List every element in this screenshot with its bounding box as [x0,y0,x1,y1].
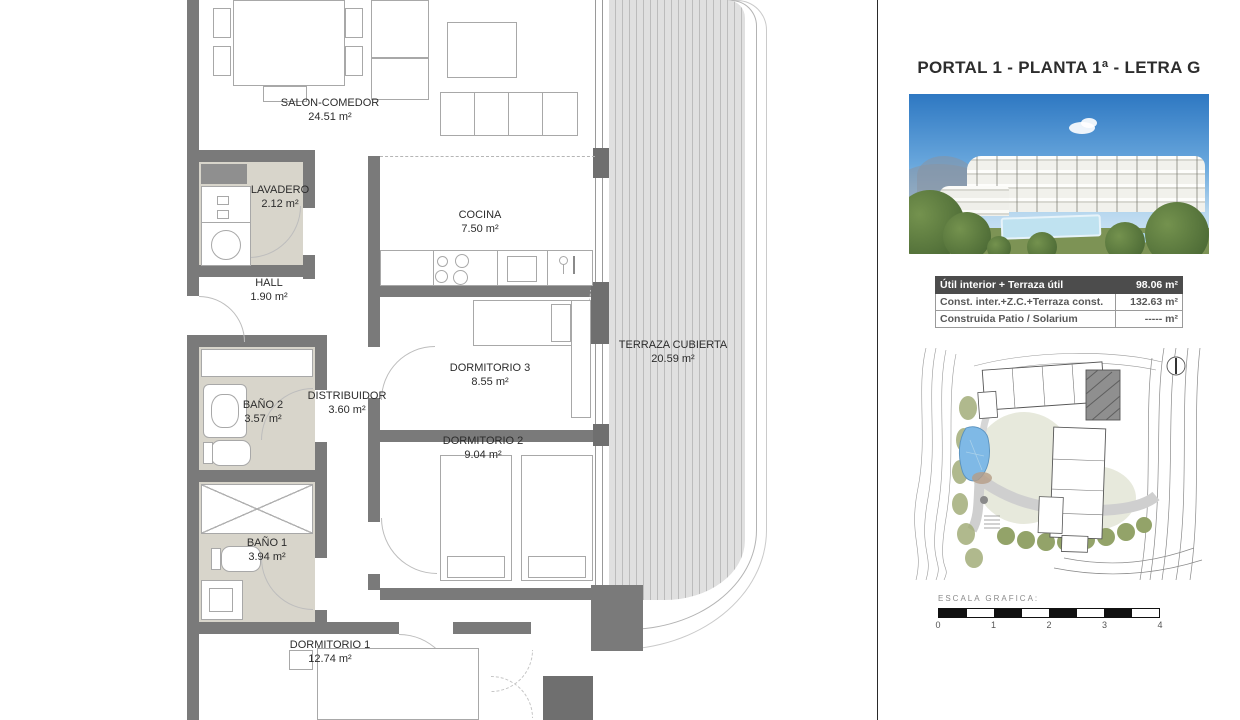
room-label-cocina: COCINA 7.50 m² [459,208,502,237]
scale-tick: 4 [1157,620,1162,630]
washer-drum-icon [211,230,241,260]
scale-segment [939,609,967,617]
furniture-chair [345,46,363,76]
wall-segment [315,442,327,470]
site-plan-image [914,348,1204,580]
scale-ticks: 0 1 2 3 4 [938,620,1160,632]
wardrobe-door-arc [491,676,533,718]
room-label-dormitorio3: DORMITORIO 3 8.55 m² [450,361,530,390]
wall-pillar [593,424,609,446]
wall-segment [315,610,327,622]
room-label-hall: HALL 1.90 m² [250,276,287,305]
room-label-salon: SALON-COMEDOR 24.51 m² [281,96,379,125]
wall-segment [187,470,327,482]
furniture-toilet [211,440,251,466]
room-name: HALL [250,276,287,290]
furniture-bathtub [201,349,313,377]
scale-segment [1022,609,1050,617]
hob-burner-icon [453,270,468,285]
door-swing-arc [381,346,435,400]
room-area: 20.59 m² [619,352,727,366]
door-swing-arc [381,518,437,574]
room-area: 12.74 m² [290,652,370,666]
room-label-lavadero: LAVADERO 2.12 m² [251,183,309,212]
wall-pillar [543,676,593,720]
room-name: DISTRIBUIDOR [308,389,387,403]
wall-segment [368,574,380,590]
area-value: 98.06 m² [1116,277,1183,294]
fork-icon [573,256,575,274]
graphic-scale: ESCALA GRAFICA: 0 1 2 3 4 [938,594,1160,632]
counter-divider [497,250,498,286]
sofa-seat-line [474,92,475,136]
door-swing-arc [199,296,245,342]
room-label-terraza: TERRAZA CUBIERTA 20.59 m² [619,338,727,367]
furniture-wardrobe [571,300,591,418]
unit-title: PORTAL 1 - PLANTA 1ª - LETRA G [878,58,1240,78]
furniture-chair [213,8,231,38]
room-name: BAÑO 1 [247,536,287,550]
area-value: 132.63 m² [1116,294,1183,311]
wall-segment [187,344,199,720]
room-name: COCINA [459,208,502,222]
table-row: Const. inter.+Z.C.+Terraza const. 132.63… [936,294,1183,311]
furniture-chair [213,46,231,76]
area-label: Construida Patio / Solarium [936,311,1116,328]
washer-divider-line [201,222,251,223]
tree-shape [1105,222,1145,254]
scale-tick: 0 [935,620,940,630]
wine-glass-icon [563,264,564,274]
room-area: 1.90 m² [250,290,287,304]
room-label-bano1: BAÑO 1 3.94 m² [247,536,287,565]
room-label-distribuidor: DISTRIBUIDOR 3.60 m² [308,389,387,418]
tree-shape [987,236,1011,254]
hob-burner-icon [435,270,448,283]
cloud-shape [1081,118,1097,128]
room-name: TERRAZA CUBIERTA [619,338,727,352]
scale-segment [1132,609,1160,617]
scale-label: ESCALA GRAFICA: [938,594,1160,603]
site-plan-drawing [914,348,1204,580]
scale-segment [967,609,995,617]
room-area: 3.94 m² [247,550,287,564]
wall-segment [368,297,380,347]
wall-pillar [591,585,643,651]
sink-basin [211,394,239,428]
furniture-laundry-counter [201,164,247,184]
hob-burner-icon [437,256,448,267]
scale-segment [1049,609,1077,617]
table-row: Útil interior + Terraza útil 98.06 m² [936,277,1183,294]
scale-tick: 1 [991,620,996,630]
room-area: 2.12 m² [251,197,309,211]
toilet-tank [211,548,221,570]
wall-segment [187,0,199,296]
wall-segment [315,335,327,390]
wall-segment [187,150,315,162]
room-area: 3.60 m² [308,403,387,417]
wall-segment [453,622,531,634]
washer-detail [217,210,229,219]
room-area: 7.50 m² [459,222,502,236]
wall-segment [368,442,380,522]
tree-shape [943,212,991,254]
furniture-shower [201,484,313,534]
scale-tick: 2 [1046,620,1051,630]
sofa-seat-line [508,92,509,136]
scale-segment [1077,609,1105,617]
room-label-dormitorio2: DORMITORIO 2 9.04 m² [443,434,523,463]
floorplan-sheet: { "panel": { "title": "PORTAL 1 - PLANTA… [0,0,1240,720]
furniture-coffee-table [447,22,517,78]
room-name: SALON-COMEDOR [281,96,379,110]
wall-pillar [591,282,609,344]
room-name: BAÑO 2 [243,398,283,412]
room-area: 9.04 m² [443,448,523,462]
room-area: 3.57 m² [243,412,283,426]
hob-burner-icon [455,254,469,268]
area-label: Const. inter.+Z.C.+Terraza const. [936,294,1116,311]
toilet-tank [203,442,213,464]
wall-pillar [593,148,609,178]
room-label-bano2: BAÑO 2 3.57 m² [243,398,283,427]
room-area: 8.55 m² [450,375,530,389]
room-name: DORMITORIO 3 [450,361,530,375]
furniture-chair [345,8,363,38]
furniture-sideboard [371,58,429,100]
furniture-sideboard [371,0,429,58]
wall-segment [315,470,327,558]
area-value: ----- m² [1116,311,1183,328]
wall-segment [380,588,607,600]
wall-segment [368,156,380,297]
furniture-dining-table [233,0,345,86]
scale-tick: 3 [1102,620,1107,630]
counter-divider [547,250,548,286]
table-row: Construida Patio / Solarium ----- m² [936,311,1183,328]
sofa-seat-line [542,92,543,136]
washer-detail [217,196,229,205]
tree-shape [1027,232,1057,254]
counter-divider [433,250,434,286]
areas-table: Útil interior + Terraza útil 98.06 m² Co… [935,276,1183,328]
furniture-sofa [440,92,578,136]
room-name: DORMITORIO 1 [290,638,370,652]
scale-bar [938,608,1160,618]
building-render-image [909,94,1209,254]
room-area: 24.51 m² [281,110,379,124]
info-panel: PORTAL 1 - PLANTA 1ª - LETRA G Útil inte… [878,0,1240,720]
bed-pillow [447,556,505,578]
room-name: LAVADERO [251,183,309,197]
scale-segment [1104,609,1132,617]
bed-pillow [551,304,571,342]
scale-segment [994,609,1022,617]
room-name: DORMITORIO 2 [443,434,523,448]
floor-plan: SALON-COMEDOR 24.51 m² LAVADERO 2.12 m² … [185,0,785,720]
room-label-dormitorio1: DORMITORIO 1 12.74 m² [290,638,370,667]
terrace-decking [609,0,745,600]
kitchen-sink [507,256,537,282]
bed-pillow [528,556,586,578]
wall-segment [187,622,399,634]
sink-basin [209,588,233,612]
area-label: Útil interior + Terraza útil [936,277,1116,294]
open-boundary-line [380,156,595,157]
